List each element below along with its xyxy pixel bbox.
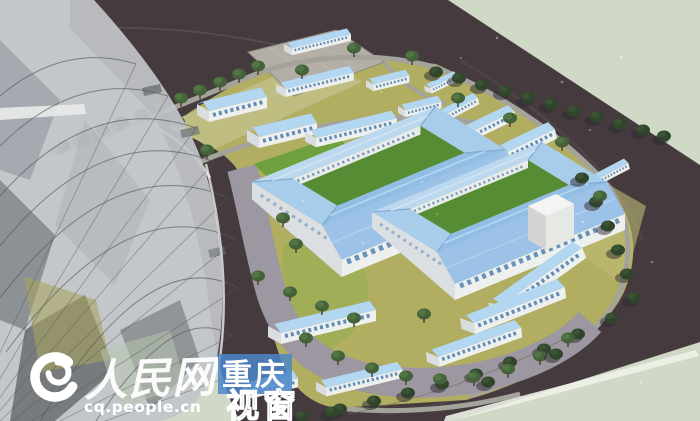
watermark-site-url: cq.people.cn [84,398,201,416]
channel-subtitle-text: 视窗 [226,386,300,421]
site-plan-rendering: 人民网 cq.people.cn 重庆 视窗 [0,0,700,421]
photo-of-architectural-rendering: 人民网 cq.people.cn 重庆 视窗 [0,0,700,421]
